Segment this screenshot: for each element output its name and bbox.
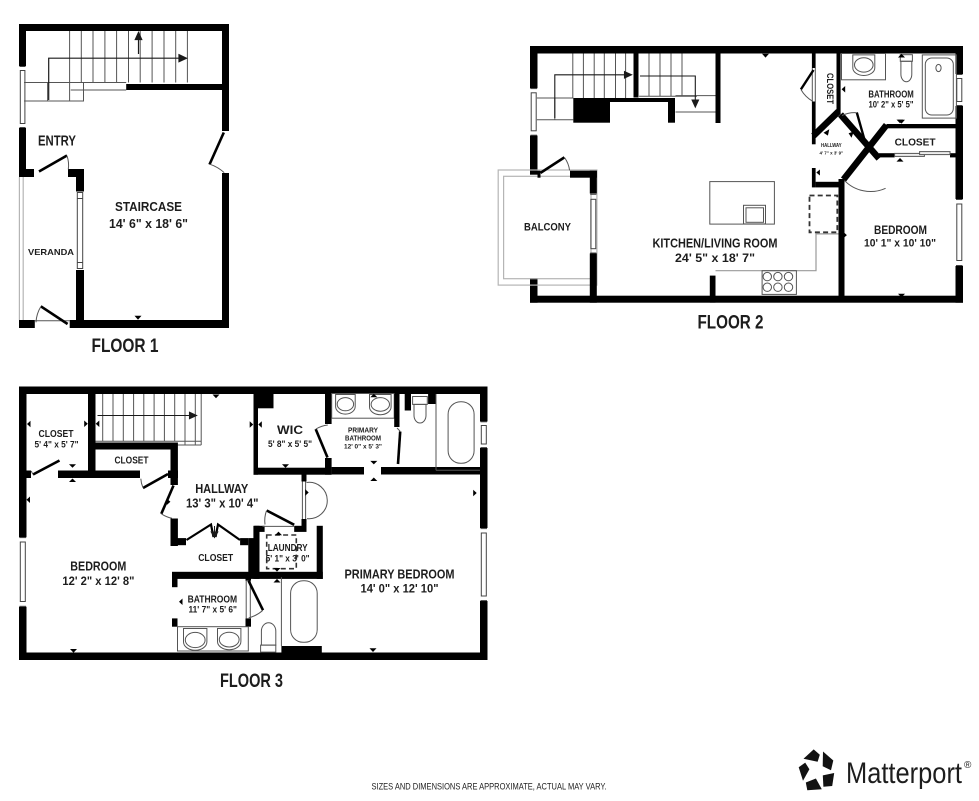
svg-text:BEDROOM: BEDROOM bbox=[874, 224, 927, 237]
svg-text:12' 2" x 12' 8": 12' 2" x 12' 8" bbox=[62, 574, 134, 588]
svg-text:BEDROOM: BEDROOM bbox=[70, 560, 126, 574]
svg-text:14' 6" x 18' 6": 14' 6" x 18' 6" bbox=[109, 217, 188, 231]
svg-text:5' 4" x 5' 7": 5' 4" x 5' 7" bbox=[35, 440, 79, 450]
svg-text:PRIMARY BEDROOM: PRIMARY BEDROOM bbox=[345, 567, 455, 582]
svg-text:KITCHEN/LIVING ROOM: KITCHEN/LIVING ROOM bbox=[653, 237, 778, 251]
svg-text:BATHROOM: BATHROOM bbox=[345, 434, 381, 443]
svg-text:STAIRCASE: STAIRCASE bbox=[115, 200, 182, 214]
svg-text:CLOSET: CLOSET bbox=[39, 428, 74, 440]
svg-text:BALCONY: BALCONY bbox=[524, 222, 572, 234]
svg-text:SIZES AND DIMENSIONS ARE APPRO: SIZES AND DIMENSIONS ARE APPROXIMATE, AC… bbox=[372, 782, 607, 792]
svg-text:HALLWAY: HALLWAY bbox=[195, 482, 248, 496]
svg-text:5' 8" x 5' 5": 5' 8" x 5' 5" bbox=[268, 439, 312, 449]
svg-text:5' 1" x 3' 0": 5' 1" x 3' 0" bbox=[266, 554, 310, 564]
svg-text:12' 0" x 5' 3": 12' 0" x 5' 3" bbox=[344, 444, 382, 451]
svg-text:ENTRY: ENTRY bbox=[38, 134, 76, 150]
svg-text:10' 1" x 10' 10": 10' 1" x 10' 10" bbox=[864, 238, 936, 250]
svg-text:CLOSET: CLOSET bbox=[198, 553, 233, 564]
svg-text:FLOOR 3: FLOOR 3 bbox=[220, 671, 283, 692]
svg-text:®: ® bbox=[964, 760, 972, 771]
svg-text:CLOSET: CLOSET bbox=[824, 73, 835, 104]
svg-text:HALLWAY: HALLWAY bbox=[821, 143, 842, 149]
svg-text:10' 2" x 5' 5": 10' 2" x 5' 5" bbox=[869, 100, 914, 110]
svg-text:WIC: WIC bbox=[277, 425, 303, 437]
svg-text:4' 7" x 3' 9": 4' 7" x 3' 9" bbox=[820, 150, 844, 155]
svg-text:Matterport: Matterport bbox=[846, 757, 962, 790]
svg-text:CLOSET: CLOSET bbox=[895, 138, 936, 149]
svg-text:LAUNDRY: LAUNDRY bbox=[268, 543, 308, 554]
svg-text:CLOSET: CLOSET bbox=[115, 456, 149, 467]
svg-text:FLOOR 2: FLOOR 2 bbox=[698, 312, 764, 334]
svg-text:13' 3" x 10' 4": 13' 3" x 10' 4" bbox=[186, 497, 259, 511]
svg-text:VERANDA: VERANDA bbox=[28, 247, 74, 257]
svg-text:24' 5" x 18' 7": 24' 5" x 18' 7" bbox=[675, 253, 755, 265]
svg-text:11' 7" x 5' 6": 11' 7" x 5' 6" bbox=[189, 605, 238, 615]
svg-text:14' 0" x 12' 10": 14' 0" x 12' 10" bbox=[361, 582, 439, 596]
svg-text:FLOOR 1: FLOOR 1 bbox=[92, 335, 159, 357]
